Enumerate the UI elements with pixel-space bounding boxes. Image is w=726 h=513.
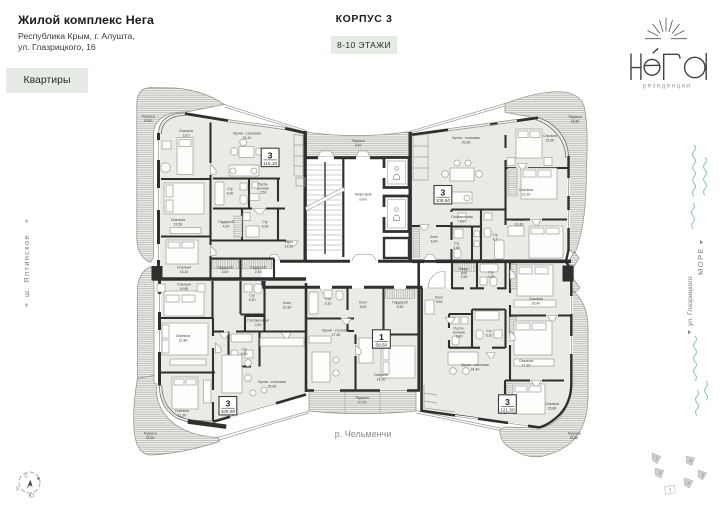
svg-text:2,60: 2,60 <box>222 270 229 274</box>
svg-text:4,50: 4,50 <box>249 298 256 302</box>
svg-text:22,10: 22,10 <box>243 136 252 140</box>
svg-text:✳: ✳ <box>24 218 29 225</box>
svg-text:Холл: Холл <box>359 301 367 305</box>
svg-text:3: 3 <box>268 150 273 160</box>
svg-text:20,40: 20,40 <box>532 302 541 306</box>
svg-text:С/у: С/у <box>488 271 494 275</box>
svg-text:1: 1 <box>659 470 662 475</box>
svg-text:2,30: 2,30 <box>255 270 262 274</box>
svg-text:С/у: С/у <box>241 348 247 352</box>
svg-text:Терраса: Терраса <box>355 396 368 400</box>
svg-text:Кухня - столовая: Кухня - столовая <box>322 329 349 333</box>
svg-text:12,50: 12,50 <box>174 223 183 227</box>
svg-text:✳: ✳ <box>24 302 29 309</box>
svg-text:5: 5 <box>702 473 705 478</box>
svg-text:Лифтовой: Лифтовой <box>355 193 372 197</box>
svg-text:Спальня: Спальня <box>519 188 533 192</box>
svg-text:ш. Ялтинское: ш. Ялтинское <box>22 234 31 297</box>
svg-text:С/у: С/у <box>492 233 498 237</box>
svg-text:121,50: 121,50 <box>500 408 515 413</box>
svg-text:13,10: 13,10 <box>180 270 189 274</box>
svg-text:холл: холл <box>359 198 367 202</box>
svg-text:5,10: 5,10 <box>486 334 493 338</box>
svg-text:10,30: 10,30 <box>283 306 292 310</box>
svg-text:Кухня - столовая: Кухня - столовая <box>461 363 488 367</box>
svg-text:С/у: С/у <box>262 220 268 224</box>
svg-text:р. Чельменчи: р. Чельменчи <box>335 429 392 439</box>
svg-text:Гардероб: Гардероб <box>250 266 265 270</box>
svg-text:5,30: 5,30 <box>397 305 404 309</box>
svg-text:9,90: 9,90 <box>436 300 443 304</box>
svg-text:Терраса: Терраса <box>143 432 156 436</box>
svg-text:Терраса: Терраса <box>568 115 581 119</box>
svg-text:24,40: 24,40 <box>471 368 480 372</box>
svg-text:16,30: 16,30 <box>515 223 524 227</box>
svg-text:Ю: Ю <box>29 494 35 500</box>
svg-text:3,60: 3,60 <box>453 246 460 250</box>
svg-text:С/у: С/у <box>486 329 492 333</box>
svg-text:25,60: 25,60 <box>268 385 277 389</box>
svg-text:Гардероб: Гардероб <box>392 301 407 305</box>
svg-text:3: 3 <box>505 397 510 407</box>
svg-text:6: 6 <box>689 458 692 463</box>
svg-text:С: С <box>25 474 29 480</box>
svg-text:Гардероб: Гардероб <box>218 220 233 224</box>
svg-text:Спальня: Спальня <box>179 129 193 133</box>
svg-text:Холл: Холл <box>283 301 291 305</box>
svg-text:12,80: 12,80 <box>179 339 188 343</box>
svg-text:Кухня - столовая: Кухня - столовая <box>258 380 285 384</box>
svg-text:6,40: 6,40 <box>431 240 438 244</box>
svg-text:Спальня: Спальня <box>545 402 559 406</box>
svg-text:3: 3 <box>225 399 230 409</box>
svg-text:Спальня: Спальня <box>529 297 543 301</box>
svg-text:З: З <box>16 487 20 493</box>
svg-text:Холл: Холл <box>285 240 293 244</box>
svg-text:Спальня: Спальня <box>171 218 185 222</box>
svg-text:2,0: 2,0 <box>460 220 465 224</box>
svg-text:4,30: 4,30 <box>227 192 234 196</box>
svg-text:Холл: Холл <box>435 296 443 300</box>
svg-text:Спальня: Спальня <box>512 218 526 222</box>
svg-text:1: 1 <box>379 332 384 342</box>
svg-text:ул. Глазрицкого: ул. Глазрицкого <box>687 276 694 326</box>
svg-text:Кухня - столовая: Кухня - столовая <box>452 136 479 140</box>
svg-text:Кухня - столовая: Кухня - столовая <box>233 132 260 136</box>
svg-text:резиденции: резиденции <box>643 83 692 90</box>
svg-text:Терраса: Терраса <box>567 432 580 436</box>
svg-text:Гардероб: Гардероб <box>217 266 232 270</box>
svg-text:С/у: С/у <box>454 242 460 246</box>
svg-text:5,50: 5,50 <box>360 305 367 309</box>
svg-text:3,60: 3,60 <box>456 335 463 339</box>
svg-text:18,60: 18,60 <box>146 436 155 440</box>
svg-text:2: 2 <box>656 456 659 461</box>
svg-text:Спальня: Спальня <box>177 283 191 287</box>
svg-text:4,2: 4,2 <box>493 238 498 242</box>
svg-text:Спальня: Спальня <box>175 409 189 413</box>
svg-text:3: 3 <box>440 188 445 198</box>
svg-text:4,60: 4,60 <box>241 352 248 356</box>
svg-text:4,50: 4,50 <box>223 225 230 229</box>
svg-text:116,10: 116,10 <box>263 161 277 166</box>
svg-text:109,90: 109,90 <box>221 409 236 414</box>
svg-text:3,10: 3,10 <box>325 302 332 306</box>
svg-text:3,40: 3,40 <box>355 144 362 148</box>
svg-text:2,40: 2,40 <box>255 323 262 327</box>
svg-text:15,60: 15,60 <box>546 139 555 143</box>
svg-text:17,10: 17,10 <box>522 364 531 368</box>
svg-text:Постирочная: Постирочная <box>247 319 268 323</box>
svg-text:Спальня: Спальня <box>519 359 533 363</box>
svg-text:11,30: 11,30 <box>178 414 187 418</box>
svg-text:16,80: 16,80 <box>570 436 579 440</box>
svg-text:4: 4 <box>687 481 690 486</box>
svg-text:Спальня: Спальня <box>177 266 191 270</box>
svg-text:19,80: 19,80 <box>144 119 153 123</box>
svg-text:С/у: С/у <box>325 297 331 301</box>
svg-text:18,80: 18,80 <box>571 120 580 124</box>
svg-text:Спальня: Спальня <box>543 134 557 138</box>
svg-text:14,20: 14,20 <box>377 378 386 382</box>
svg-text:Терраса: Терраса <box>351 139 364 143</box>
svg-text:15,80: 15,80 <box>548 407 557 411</box>
svg-text:29,30: 29,30 <box>462 141 471 145</box>
svg-text:С/у: С/у <box>249 294 255 298</box>
svg-text:19,80: 19,80 <box>180 287 189 291</box>
svg-text:17,60: 17,60 <box>332 333 341 337</box>
svg-text:3,90: 3,90 <box>488 275 495 279</box>
svg-text:С/у: С/у <box>227 187 233 191</box>
svg-text:13,0: 13,0 <box>183 134 190 138</box>
svg-text:13,10: 13,10 <box>285 245 294 249</box>
svg-text:2,50: 2,50 <box>461 275 468 279</box>
svg-text:4,30: 4,30 <box>262 225 269 229</box>
svg-text:МОРЕ: МОРЕ <box>696 247 705 275</box>
svg-text:58,60: 58,60 <box>376 343 388 348</box>
svg-text:3: 3 <box>669 488 672 493</box>
svg-text:108,60: 108,60 <box>436 198 451 203</box>
svg-text:Спальня: Спальня <box>176 334 190 338</box>
svg-text:Спальня: Спальня <box>374 373 388 377</box>
svg-text:12,20: 12,20 <box>522 193 531 197</box>
svg-text:3,50: 3,50 <box>260 191 267 195</box>
svg-text:Холл: Холл <box>430 235 438 239</box>
svg-text:Постирочная: Постирочная <box>451 215 472 219</box>
svg-text:10,70: 10,70 <box>358 401 367 405</box>
svg-text:Терраса: Терраса <box>141 115 154 119</box>
